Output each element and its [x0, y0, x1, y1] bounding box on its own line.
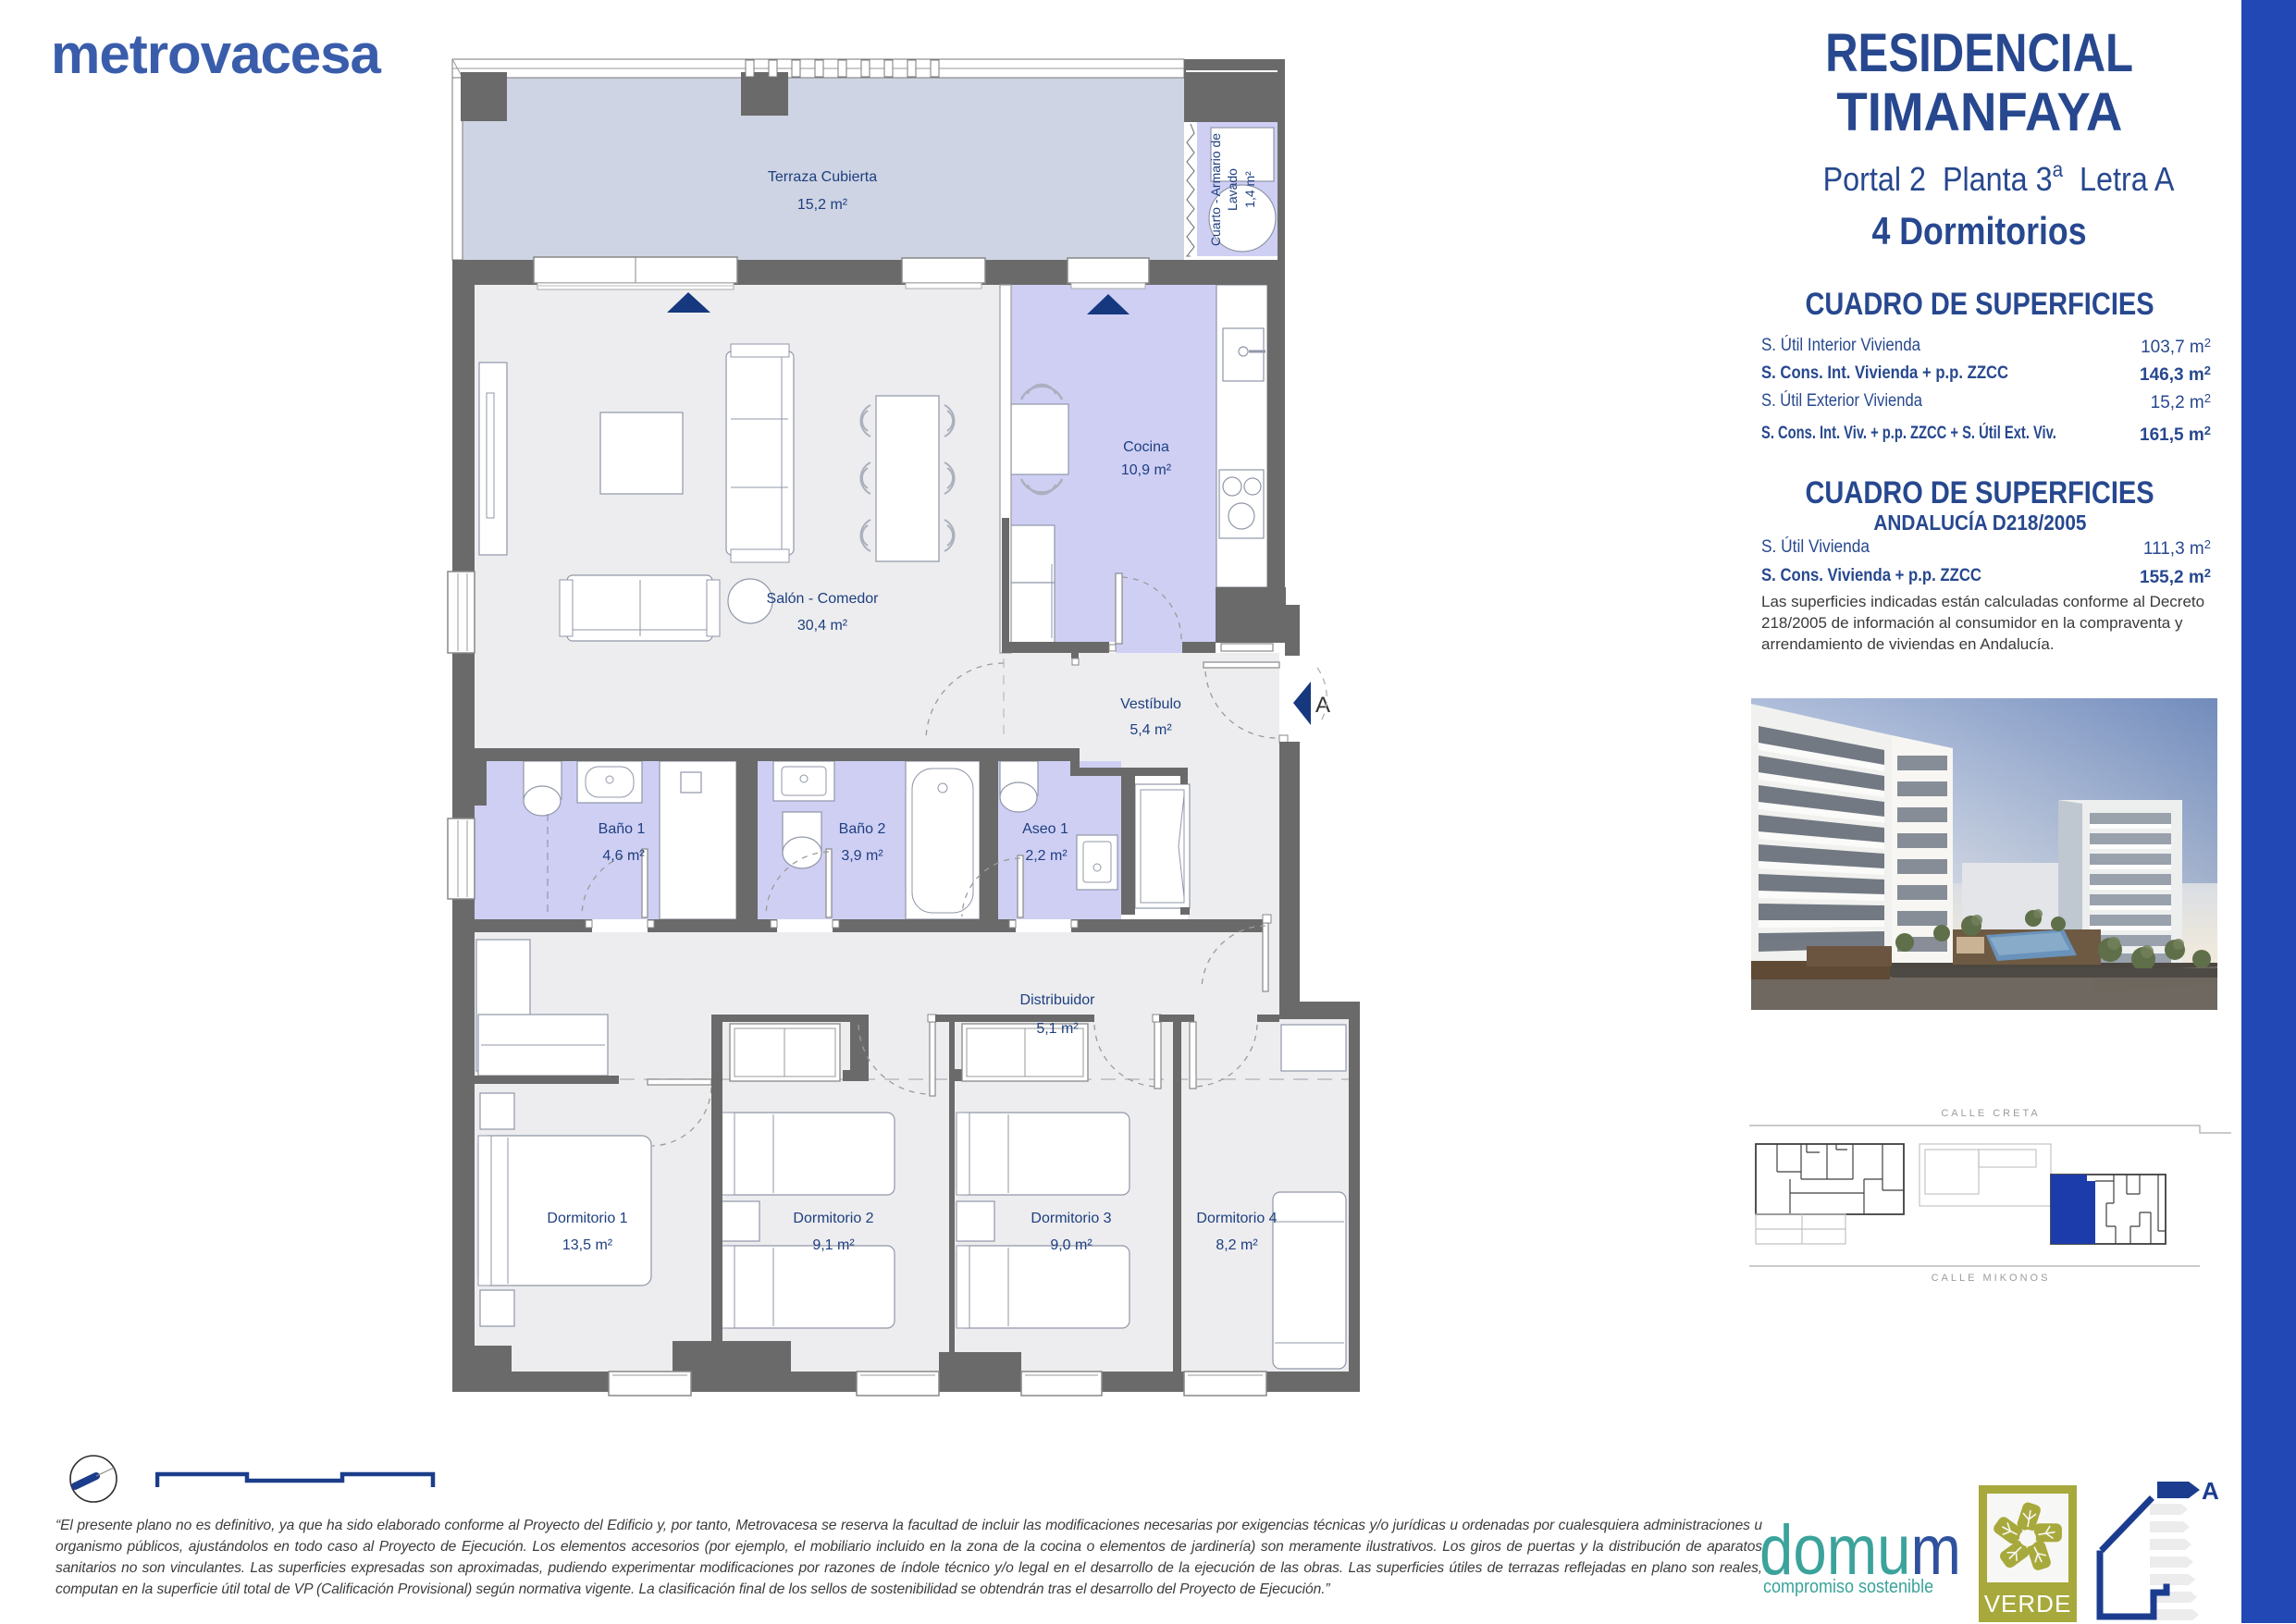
svg-text:8,2 m²: 8,2 m² — [1216, 1237, 1258, 1253]
svg-text:10,9 m²: 10,9 m² — [1121, 462, 1172, 478]
svg-text:Baño 1: Baño 1 — [599, 821, 646, 837]
svg-text:Cuarto - Armario de: Cuarto - Armario de — [1208, 133, 1223, 246]
svg-text:Dormitorio 3: Dormitorio 3 — [1031, 1211, 1111, 1226]
svg-text:5,4 m²: 5,4 m² — [1129, 722, 1172, 738]
svg-text:VERDE: VERDE — [1984, 1590, 2072, 1618]
svg-text:15,2 m²: 15,2 m² — [797, 197, 848, 213]
svg-text:3,9 m²: 3,9 m² — [841, 848, 883, 864]
svg-text:Aseo 1: Aseo 1 — [1022, 821, 1068, 837]
svg-text:4,6 m²: 4,6 m² — [602, 848, 645, 864]
svg-text:5,1 m²: 5,1 m² — [1036, 1021, 1079, 1037]
svg-text:Vestíbulo: Vestíbulo — [1120, 696, 1181, 712]
svg-text:A: A — [1315, 693, 1330, 718]
svg-text:Lavado: Lavado — [1225, 168, 1240, 211]
svg-text:Distribuidor: Distribuidor — [1020, 992, 1096, 1008]
svg-text:A: A — [2202, 1478, 2219, 1505]
svg-text:Cocina: Cocina — [1123, 439, 1169, 455]
svg-text:Dormitorio 4: Dormitorio 4 — [1196, 1211, 1277, 1226]
svg-text:Dormitorio 2: Dormitorio 2 — [793, 1211, 873, 1226]
svg-text:Baño 2: Baño 2 — [839, 821, 886, 837]
svg-text:CALLE CRETA: CALLE CRETA — [1941, 1108, 2040, 1119]
svg-text:9,0 m²: 9,0 m² — [1050, 1237, 1092, 1253]
svg-text:Salón - Comedor: Salón - Comedor — [767, 591, 880, 607]
svg-text:CALLE MIKONOS: CALLE MIKONOS — [1932, 1273, 2051, 1284]
svg-text:13,5 m²: 13,5 m² — [562, 1237, 613, 1253]
svg-text:1,4 m²: 1,4 m² — [1242, 171, 1257, 208]
svg-text:9,1 m²: 9,1 m² — [812, 1237, 855, 1253]
svg-text:2,2 m²: 2,2 m² — [1025, 848, 1068, 864]
svg-text:Terraza Cubierta: Terraza Cubierta — [768, 169, 877, 185]
svg-text:30,4 m²: 30,4 m² — [797, 618, 848, 634]
svg-text:Dormitorio 1: Dormitorio 1 — [547, 1211, 627, 1226]
